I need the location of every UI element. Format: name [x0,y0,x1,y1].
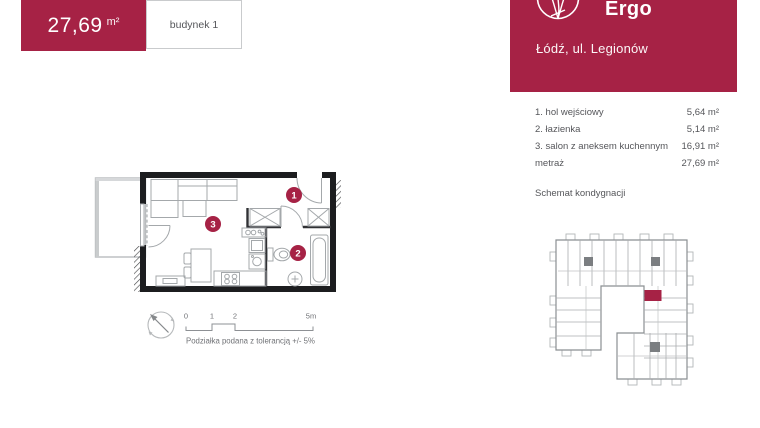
svg-text:2: 2 [233,312,237,321]
svg-text:1: 1 [291,190,297,201]
stair-core [651,257,660,266]
room-badge-3: 3 [205,216,221,232]
highlighted-unit [645,290,662,301]
wardrobe [250,209,280,227]
dining-table [184,249,211,282]
wardrobe [308,209,329,227]
north-arrow-icon [148,312,175,338]
bathroom-door [281,206,303,228]
scale-caption: Podziałka podana z tolerancją +/- 5% [186,337,315,346]
sofa [151,180,237,218]
balcony-door-swing [149,226,171,248]
svg-text:3: 3 [210,219,215,230]
drawings-layer: 1 2 3 0 1 2 5m Podziałka po [0,0,760,428]
stair-core [650,342,660,352]
coffee-table [183,201,206,217]
room-badge-2: 2 [290,245,306,261]
balcony [96,178,146,257]
apartment-card-page: 27,69 m² budynek 1 Ergo Łódź, ul. Legion… [0,0,760,428]
svg-text:1: 1 [210,312,214,321]
kitchen [214,228,266,286]
svg-text:2: 2 [295,248,300,259]
floor-schematic [550,234,693,385]
room-badge-1: 1 [286,187,302,203]
hatched-wall [336,180,341,208]
stair-core [584,257,593,266]
hatched-wall [134,246,140,292]
svg-text:0: 0 [184,312,188,321]
balcony-door-frame [141,204,145,246]
scale-bar: 0 1 2 5m Podziałka podana z tolerancją +… [184,312,316,346]
tv-stand [156,276,185,286]
svg-text:5m: 5m [306,312,316,321]
apartment-floor-plan: 1 2 3 [96,172,342,292]
